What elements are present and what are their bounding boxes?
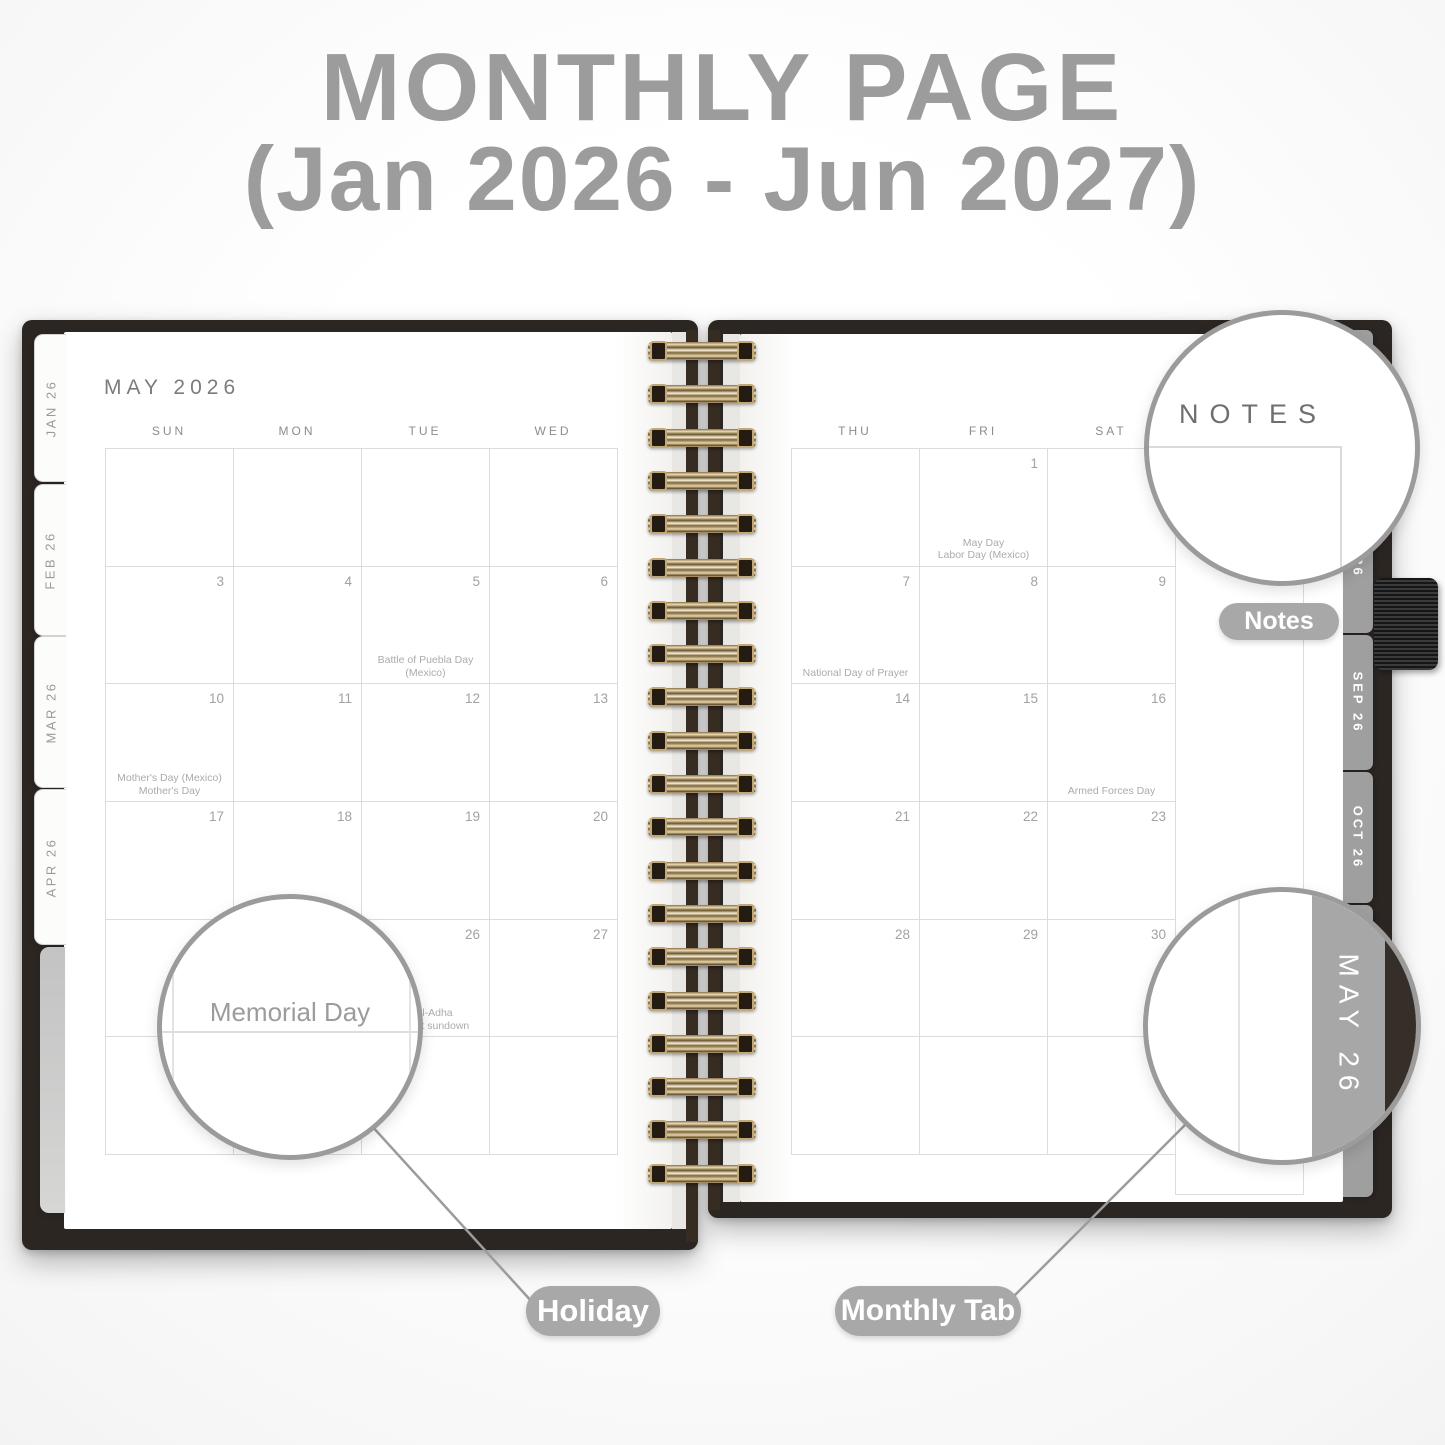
month-title: MAY 2026 — [104, 376, 240, 400]
holiday-text-magnified: Memorial Day — [162, 997, 418, 1028]
monthly-tab-label-magnified: MAY 26 — [1333, 953, 1365, 1098]
spiral-loop — [648, 818, 756, 836]
calendar-cell: 8 — [920, 567, 1048, 685]
notes-header-magnified: NOTES — [1179, 399, 1327, 430]
day-number: 10 — [209, 691, 224, 706]
spiral-loop — [648, 732, 756, 750]
day-number: 30 — [1151, 927, 1166, 942]
calendar-cell: 21 — [792, 802, 920, 920]
calendar-cell: 13 — [490, 684, 618, 802]
spiral-loop — [648, 948, 756, 966]
day-number: 26 — [465, 927, 480, 942]
page-title-line1: MONTHLY PAGE — [0, 40, 1445, 136]
calendar-cell: 17 — [106, 802, 234, 920]
used-pages-edge — [40, 947, 65, 1213]
page-edge-right — [723, 334, 740, 1202]
month-tab-label: FEB 26 — [43, 531, 58, 589]
day-number: 6 — [600, 574, 608, 589]
planner-product-image: MONTHLY PAGE (Jan 2026 - Jun 2027) JAN 2… — [0, 0, 1445, 1445]
notes-box-line-vertical — [1340, 446, 1342, 581]
day-number: 19 — [465, 809, 480, 824]
calendar-cell — [792, 449, 920, 567]
holiday-text: May DayLabor Day (Mexico) — [922, 537, 1045, 562]
page-title-line2: (Jan 2026 - Jun 2027) — [0, 134, 1445, 225]
spiral-loop — [648, 429, 756, 447]
day-number: 21 — [895, 809, 910, 824]
spiral-loop — [648, 1121, 756, 1139]
holiday-text: Mother's Day (Mexico)Mother's Day — [108, 772, 231, 797]
calendar-cell: 15 — [920, 684, 1048, 802]
spiral-loop — [648, 775, 756, 793]
month-tab-label: SEP 26 — [1351, 672, 1366, 734]
calendar-cell: 14 — [792, 684, 920, 802]
holiday-text: Battle of Puebla Day(Mexico) — [364, 654, 487, 679]
spiral-loop — [648, 1078, 756, 1096]
grid-line-magnified — [162, 1031, 418, 1033]
month-tab-apr-26: APR 26 — [34, 789, 66, 945]
spiral-loop — [648, 905, 756, 923]
holiday-callout-badge: Holiday — [526, 1286, 660, 1336]
notes-box-line-horizontal — [1149, 446, 1342, 448]
spiral-loop — [648, 515, 756, 533]
day-number: 7 — [902, 574, 910, 589]
calendar-cell — [106, 449, 234, 567]
month-tab-sep-26: SEP 26 — [1343, 635, 1373, 770]
spiral-loop — [648, 472, 756, 490]
day-number: 5 — [472, 574, 480, 589]
day-header-wed: WED — [493, 424, 613, 438]
day-number: 29 — [1023, 927, 1038, 942]
day-number: 8 — [1030, 574, 1038, 589]
day-number: 18 — [337, 809, 352, 824]
holiday-text: National Day of Prayer — [794, 667, 917, 680]
calendar-cell: 3 — [106, 567, 234, 685]
month-tab-oct-26: OCT 26 — [1343, 772, 1373, 903]
day-number: 3 — [216, 574, 224, 589]
calendar-cell — [234, 449, 362, 567]
calendar-cell: 10Mother's Day (Mexico)Mother's Day — [106, 684, 234, 802]
day-header-fri: FRI — [923, 424, 1043, 438]
spiral-loop — [648, 385, 756, 403]
calendar-cell: 28 — [792, 920, 920, 1038]
day-number: 27 — [593, 927, 608, 942]
calendar-cell: 27 — [490, 920, 618, 1038]
day-header-thu: THU — [795, 424, 915, 438]
calendar-cell: 4 — [234, 567, 362, 685]
calendar-cell: 23 — [1048, 802, 1176, 920]
month-tab-label: JAN 26 — [43, 379, 58, 437]
calendar-cell: 22 — [920, 802, 1048, 920]
notes-callout-badge: Notes — [1219, 603, 1339, 640]
calendar-cell: 29 — [920, 920, 1048, 1038]
monthly-tab-magnified: MAY 26 — [1312, 892, 1385, 1160]
day-number: 12 — [465, 691, 480, 706]
pen-loop — [1374, 578, 1438, 670]
calendar-cell: 20 — [490, 802, 618, 920]
calendar-cell — [490, 1037, 618, 1155]
spiral-loop — [648, 1165, 756, 1183]
monthly-tab-callout-badge: Monthly Tab — [835, 1286, 1021, 1336]
calendar-cell: 12 — [362, 684, 490, 802]
day-header-sun: SUN — [109, 424, 229, 438]
spiral-loop — [648, 602, 756, 620]
spiral-loop — [648, 992, 756, 1010]
calendar-cell — [490, 449, 618, 567]
spiral-loop — [648, 342, 756, 360]
calendar-cell: 9 — [1048, 567, 1176, 685]
day-number: 17 — [209, 809, 224, 824]
spiral-loop — [648, 645, 756, 663]
month-tab-label: APR 26 — [43, 837, 58, 897]
spiral-loop — [648, 862, 756, 880]
day-number: 16 — [1151, 691, 1166, 706]
month-tab-jan-26: JAN 26 — [34, 334, 66, 482]
day-number: 13 — [593, 691, 608, 706]
day-number: 20 — [593, 809, 608, 824]
month-tab-label: OCT 26 — [1351, 806, 1366, 870]
day-header-tue: TUE — [365, 424, 485, 438]
calendar-cell: 7National Day of Prayer — [792, 567, 920, 685]
month-tab-mar-26: MAR 26 — [34, 636, 66, 788]
cover-edge-magnified — [1385, 892, 1416, 1160]
day-number: 1 — [1030, 456, 1038, 471]
day-number: 14 — [895, 691, 910, 706]
day-number: 4 — [344, 574, 352, 589]
day-number: 9 — [1158, 574, 1166, 589]
calendar-cell — [792, 1037, 920, 1155]
magnifier-notes: NOTES — [1144, 310, 1420, 586]
calendar-cell: 6 — [490, 567, 618, 685]
grid-line-magnified — [1238, 892, 1240, 1160]
calendar-cell: 19 — [362, 802, 490, 920]
month-tab-label: MAR 26 — [43, 681, 58, 743]
calendar-cell — [920, 1037, 1048, 1155]
day-number: 28 — [895, 927, 910, 942]
magnifier-holiday: Memorial Day — [157, 894, 423, 1160]
spiral-loop — [648, 1035, 756, 1053]
magnifier-monthly-tab: MAY 26 — [1143, 887, 1421, 1165]
calendar-cell: 5Battle of Puebla Day(Mexico) — [362, 567, 490, 685]
day-number: 15 — [1023, 691, 1038, 706]
day-header-mon: MON — [237, 424, 357, 438]
calendar-grid-right: 1May DayLabor Day (Mexico)7National Day … — [791, 448, 1176, 1155]
month-tab-feb-26: FEB 26 — [34, 484, 66, 636]
calendar-cell: 1May DayLabor Day (Mexico) — [920, 449, 1048, 567]
day-number: 11 — [338, 691, 352, 706]
calendar-cell: 16Armed Forces Day — [1048, 684, 1176, 802]
calendar-cell: 11 — [234, 684, 362, 802]
holiday-text: Armed Forces Day — [1050, 785, 1173, 798]
spiral-loop — [648, 559, 756, 577]
day-number: 23 — [1151, 809, 1166, 824]
calendar-cell — [362, 449, 490, 567]
day-number: 22 — [1023, 809, 1038, 824]
spiral-loop — [648, 688, 756, 706]
